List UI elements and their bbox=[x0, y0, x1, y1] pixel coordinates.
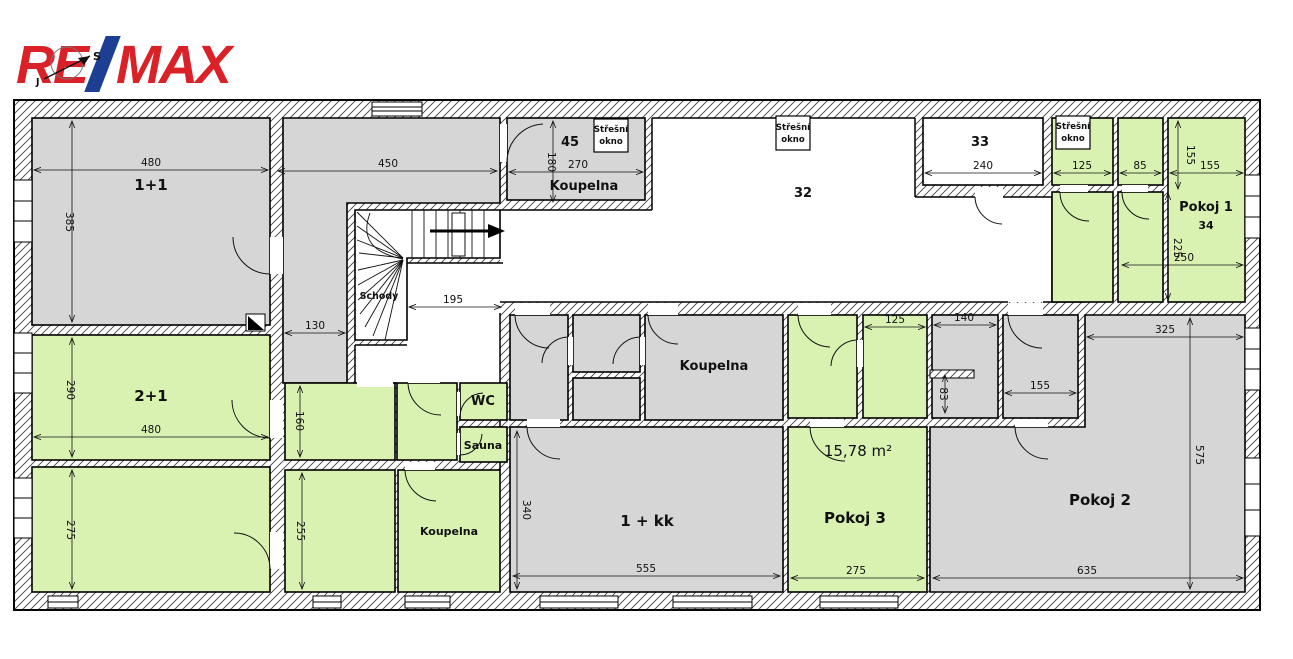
vestibule bbox=[397, 383, 457, 460]
window-top-1 bbox=[372, 102, 422, 116]
compass-north-label: S bbox=[93, 50, 101, 63]
label-koupelna-mid: Koupelna bbox=[680, 359, 749, 374]
dim-275-b: 275 bbox=[846, 565, 866, 577]
label-1plus1: 1+1 bbox=[134, 176, 167, 194]
roof-window-2-line2: okno bbox=[781, 135, 805, 145]
window-bottom-4 bbox=[540, 596, 618, 608]
dim-195: 195 bbox=[443, 294, 463, 306]
dim-270: 270 bbox=[568, 159, 588, 171]
dim-290: 290 bbox=[64, 380, 76, 400]
label-45: 45 bbox=[561, 135, 579, 150]
window-right-1 bbox=[1245, 175, 1260, 238]
room-g bbox=[788, 315, 857, 418]
compass-south-label: J bbox=[35, 77, 40, 88]
label-schody: Schody bbox=[360, 291, 400, 302]
window-bottom-2 bbox=[313, 596, 341, 608]
room-green-a2 bbox=[1052, 192, 1113, 302]
window-right-3 bbox=[1245, 458, 1260, 536]
dim-240: 240 bbox=[973, 160, 993, 172]
dim-155-v: 155 bbox=[1184, 145, 1196, 165]
window-bottom-3 bbox=[405, 596, 450, 608]
dim-160: 160 bbox=[293, 411, 305, 431]
floorplan-page: RE MAX S J bbox=[0, 0, 1293, 659]
dim-83: 83 bbox=[937, 387, 949, 400]
room-j bbox=[1003, 315, 1078, 418]
hall-d bbox=[510, 315, 568, 420]
label-wc: WC bbox=[471, 394, 495, 409]
room-f bbox=[573, 378, 640, 420]
dim-385: 385 bbox=[63, 212, 75, 232]
floor-plan: S J bbox=[0, 0, 1293, 659]
dim-450: 450 bbox=[378, 158, 398, 170]
window-bottom-5 bbox=[673, 596, 752, 608]
wall-stub bbox=[930, 370, 974, 378]
dim-325: 325 bbox=[1155, 324, 1175, 336]
label-32: 32 bbox=[794, 186, 812, 201]
room-green-b2 bbox=[1118, 192, 1163, 302]
dim-555: 555 bbox=[636, 563, 656, 575]
compass-icon: S J bbox=[35, 47, 101, 88]
window-left-3 bbox=[14, 478, 32, 538]
label-pokoj3: Pokoj 3 bbox=[824, 509, 886, 527]
window-right-2 bbox=[1245, 328, 1260, 390]
label-koupelna-bottom: Koupelna bbox=[420, 525, 478, 538]
window-bottom-6 bbox=[820, 596, 898, 608]
window-left-2 bbox=[14, 333, 32, 393]
dim-635: 635 bbox=[1077, 565, 1097, 577]
dim-250: 250 bbox=[1174, 252, 1194, 264]
roof-window-2-line1: Střešní bbox=[776, 122, 811, 133]
label-1kk: 1 + kk bbox=[620, 512, 674, 530]
dim-480-2plus1: 480 bbox=[141, 424, 161, 436]
label-pokoj1: Pokoj 1 bbox=[1179, 200, 1233, 215]
room-green-b bbox=[1118, 118, 1163, 185]
dim-140: 140 bbox=[954, 312, 974, 324]
label-34: 34 bbox=[1198, 219, 1214, 232]
dim-155-c: 155 bbox=[1030, 380, 1050, 392]
room-i bbox=[932, 315, 998, 418]
label-33: 33 bbox=[971, 135, 989, 150]
room-e bbox=[573, 315, 640, 372]
room-h bbox=[863, 315, 927, 418]
dim-255: 255 bbox=[294, 521, 306, 541]
dim-130: 130 bbox=[305, 320, 325, 332]
entrance-marker-icon bbox=[246, 314, 265, 331]
dim-125-b: 125 bbox=[885, 314, 905, 326]
roof-window-1-line2: okno bbox=[599, 137, 623, 147]
roof-window-3-line1: Střešní bbox=[1056, 121, 1091, 132]
dim-340: 340 bbox=[520, 500, 532, 520]
dim-155-h: 155 bbox=[1200, 160, 1220, 172]
label-koupelna-top: Koupelna bbox=[550, 179, 619, 194]
window-left-1 bbox=[14, 180, 32, 242]
dim-480-1plus1: 480 bbox=[141, 157, 161, 169]
roof-window-1-line1: Střešní bbox=[594, 124, 629, 135]
window-bottom-1 bbox=[48, 596, 78, 608]
dim-275-a: 275 bbox=[64, 520, 76, 540]
label-sauna: Sauna bbox=[464, 439, 502, 452]
label-pokoj2: Pokoj 2 bbox=[1069, 491, 1131, 509]
dim-125-a: 125 bbox=[1072, 160, 1092, 172]
label-2plus1: 2+1 bbox=[134, 387, 167, 405]
dim-575: 575 bbox=[1193, 445, 1205, 465]
room-33 bbox=[923, 118, 1043, 185]
dim-180: 180 bbox=[545, 152, 557, 172]
dim-85: 85 bbox=[1133, 160, 1146, 172]
stair-rail bbox=[452, 213, 465, 256]
label-pokoj3-area: 15,78 m² bbox=[824, 442, 892, 460]
roof-window-3-line2: okno bbox=[1061, 134, 1085, 144]
